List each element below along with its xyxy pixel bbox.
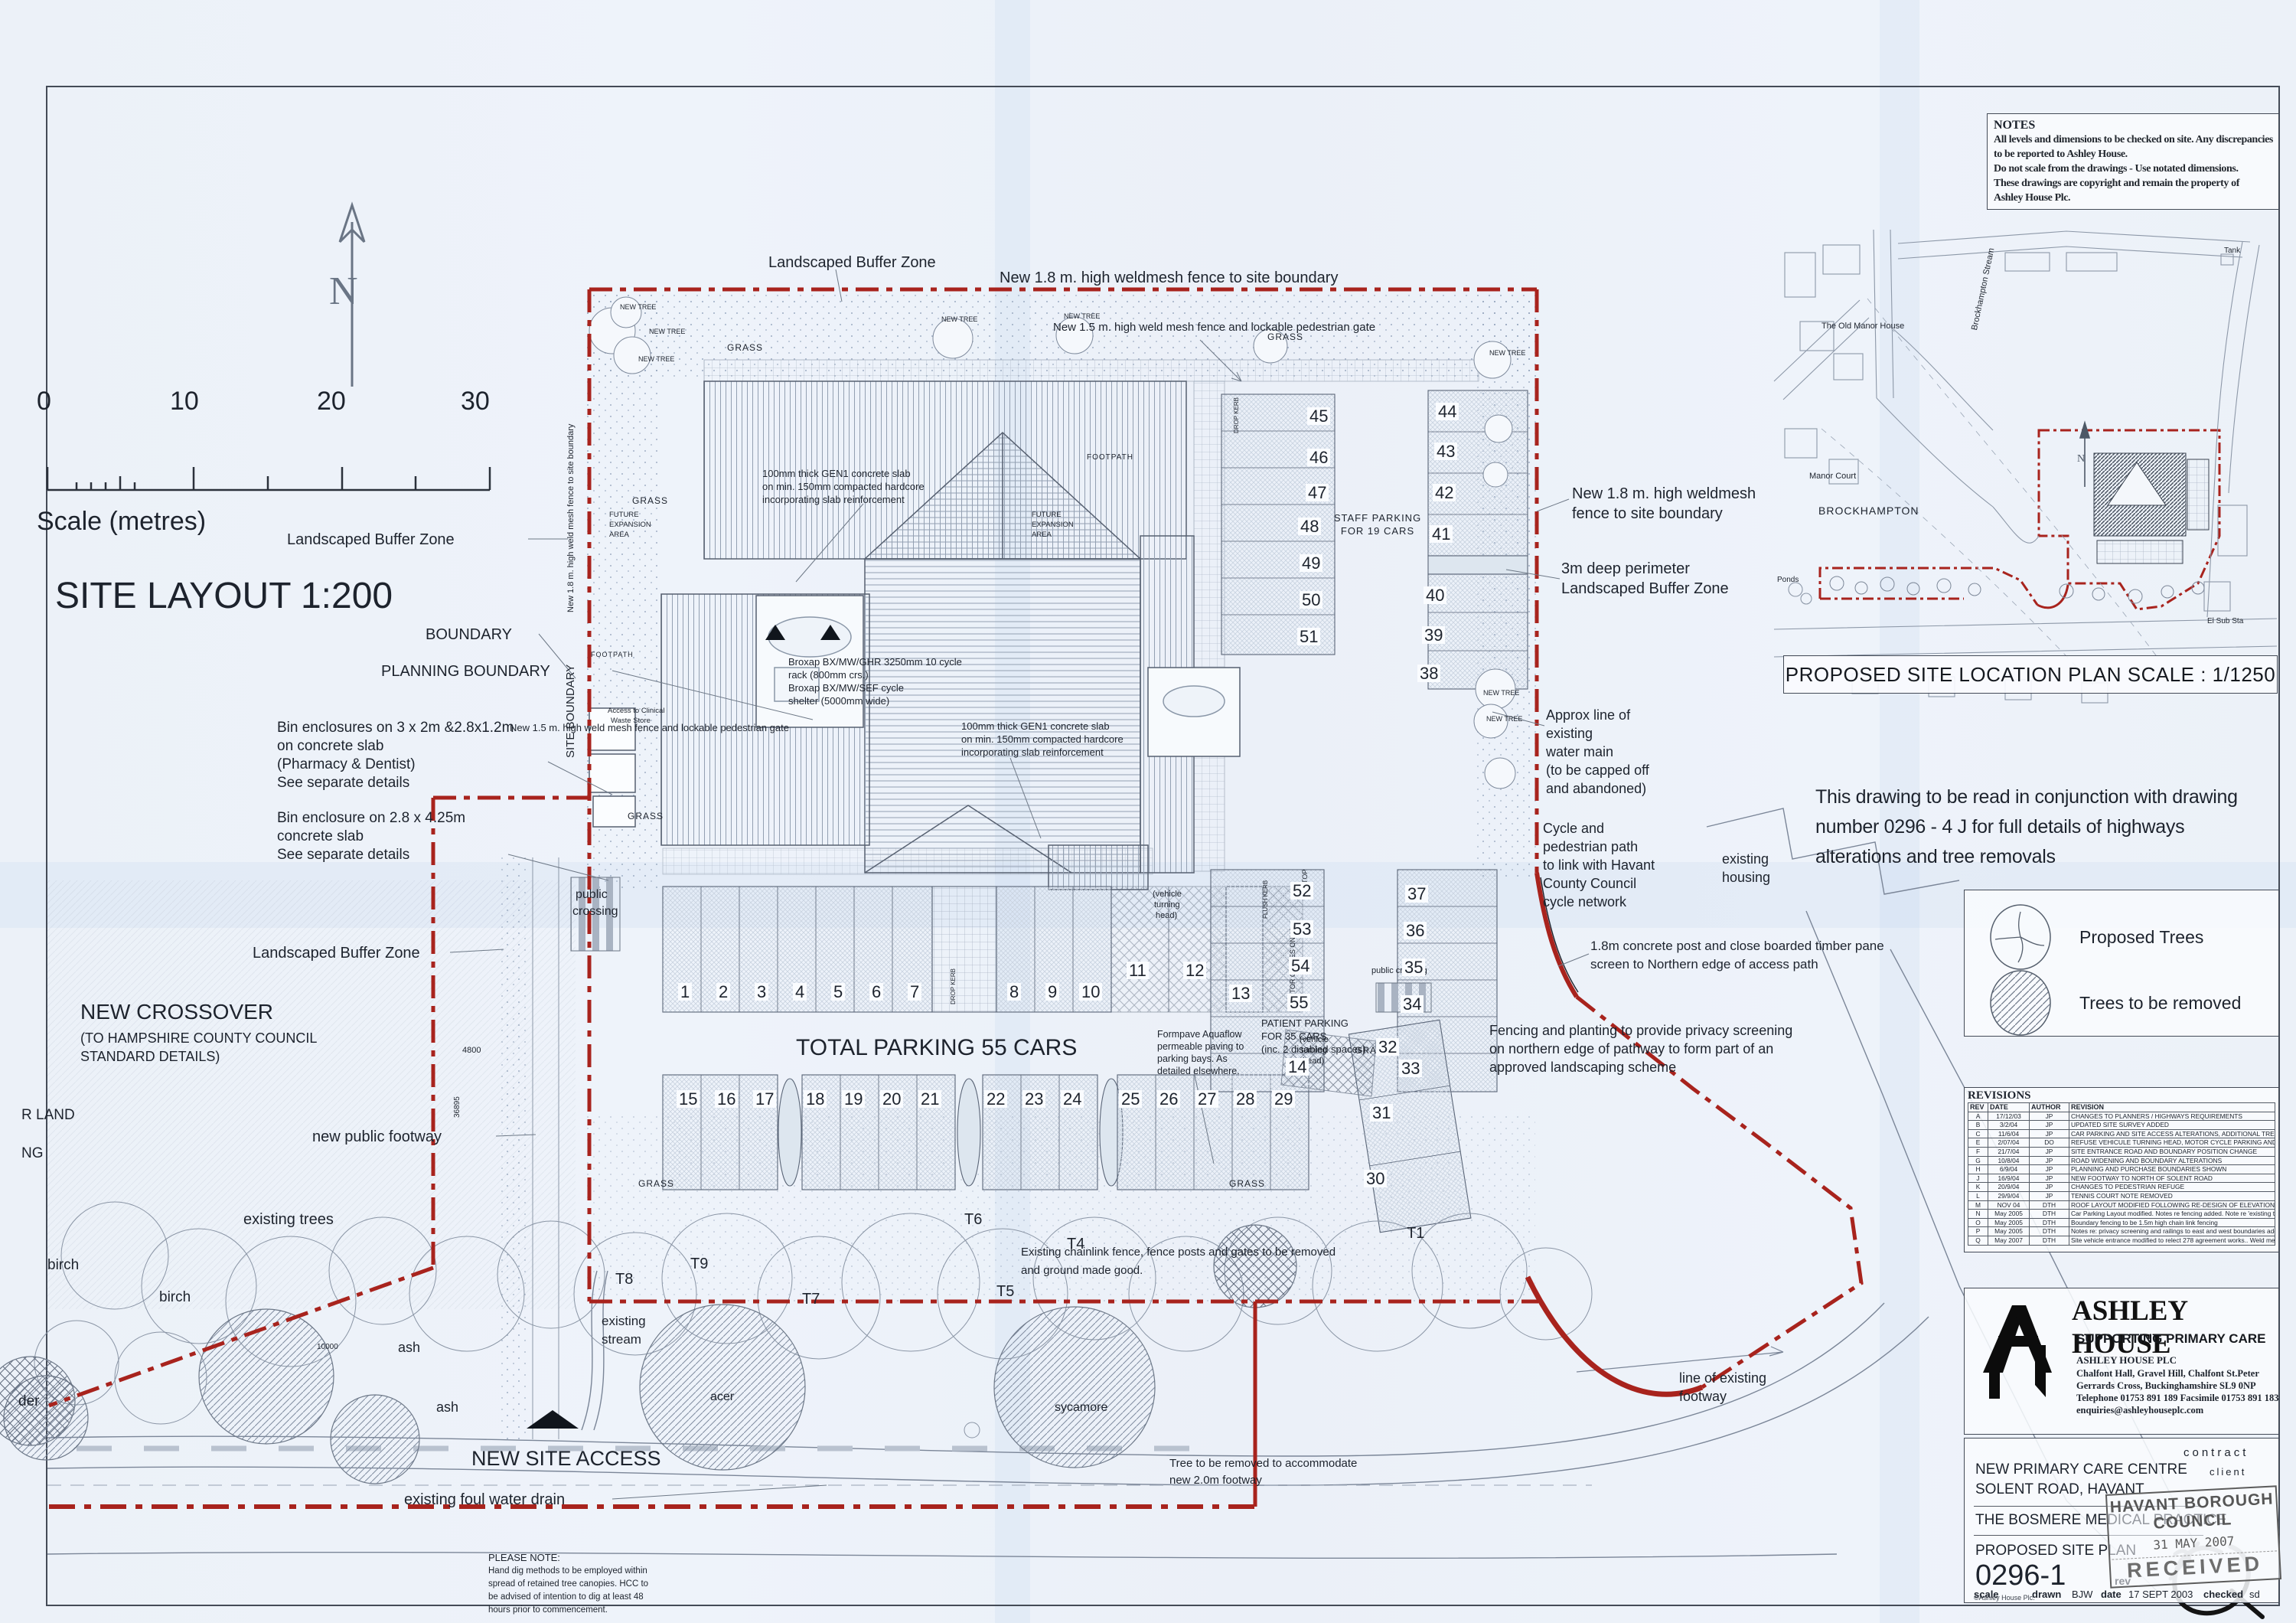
revision-author: JP	[2030, 1183, 2069, 1192]
plan-label: existing	[1722, 851, 1769, 867]
plan-label: der	[18, 1393, 39, 1409]
revision-date: 3/2/04	[1988, 1121, 2030, 1130]
plan-label: parking bays. As	[1157, 1053, 1228, 1064]
scalebar-tick-20: 20	[317, 387, 346, 416]
revision-text: Site vehicle entrance modified to relect…	[2069, 1236, 2275, 1245]
revision-text: CHANGES TO PLANNERS / HIGHWAYS REQUIREME…	[2069, 1112, 2275, 1121]
plan-label: GRASS	[1229, 1179, 1265, 1189]
revision-author: DTH	[2030, 1210, 2069, 1219]
plan-label: The Old Manor House	[1821, 322, 1904, 331]
parking-number: 29	[1272, 1090, 1295, 1108]
revision-rev: H	[1968, 1165, 1988, 1174]
plan-label: AREA	[609, 531, 629, 540]
parking-number: 44	[1436, 403, 1459, 420]
revisions-header-revision: REVISION	[2069, 1103, 2275, 1112]
parking-number: 55	[1287, 994, 1310, 1011]
parking-number: 18	[804, 1090, 827, 1108]
revision-text: ROOF LAYOUT MODIFIED FOLLOWING RE-DESIGN…	[2069, 1200, 2275, 1210]
plan-label: El Sub Sta	[2207, 617, 2243, 625]
plan-label: ash	[398, 1340, 420, 1355]
parking-number: 15	[677, 1090, 700, 1108]
plan-label: NEW TREE	[1483, 689, 1519, 697]
plan-label: BROCKHAMPTON	[1818, 505, 1919, 518]
company-email: enquiries@ashleyhouseplc.com	[2076, 1405, 2203, 1416]
revision-text: Car Parking Layout modified. Notes re fe…	[2069, 1210, 2275, 1219]
plan-label: 3m deep perimeter	[1561, 560, 1690, 577]
parking-number: 35	[1402, 958, 1425, 976]
copyright: ©Ashley House Plc.	[1974, 1594, 2035, 1602]
revisions-header-rev: REV	[1968, 1103, 1988, 1112]
parking-number: 1	[678, 983, 692, 1001]
revision-row: B 3/2/04 JP UPDATED SITE SURVEY ADDED	[1968, 1121, 2275, 1130]
revision-row: L 29/9/04 JP TENNIS COURT NOTE REMOVED	[1968, 1191, 2275, 1200]
plan-label: NEW TREE	[649, 328, 685, 335]
tree-legend: Proposed Trees Trees to be removed	[1964, 890, 2279, 1037]
notes-line: Ashley House Plc.	[1994, 191, 2272, 205]
parking-number: 42	[1433, 484, 1456, 501]
plan-label: Ponds	[1777, 576, 1799, 584]
revision-rev: J	[1968, 1174, 1988, 1183]
parking-number: 20	[880, 1090, 903, 1108]
plan-label: turning	[1154, 900, 1180, 909]
revision-text: UPDATED SITE SURVEY ADDED	[2069, 1121, 2275, 1130]
plan-label: (vehicle	[1300, 1035, 1329, 1044]
parking-number: 23	[1022, 1090, 1045, 1108]
plan-label: FUTURE	[609, 511, 639, 520]
parking-number: 13	[1229, 985, 1252, 1002]
revision-date: 10/8/04	[1988, 1156, 2030, 1165]
client-label: client	[2210, 1466, 2246, 1478]
tree-label: T5	[996, 1283, 1014, 1300]
plan-label: Existing chainlink fence, fence posts an…	[1021, 1246, 1336, 1259]
parking-number: 39	[1422, 626, 1445, 644]
parking-number: 27	[1195, 1090, 1218, 1108]
plan-label: incorporating slab reinforcement	[762, 495, 905, 506]
plan-label: NEW TREE	[638, 355, 674, 363]
revision-row: P May 2005 DTH Notes re: privacy screeni…	[1968, 1227, 2275, 1236]
revision-date: NOV 04	[1988, 1200, 2030, 1210]
plan-label: 10000	[317, 1343, 338, 1351]
parking-number: 46	[1307, 449, 1330, 466]
revision-author: JP	[2030, 1165, 2069, 1174]
plan-label: existing trees	[243, 1211, 334, 1228]
plan-label: SITE BOUNDARY	[565, 665, 578, 758]
plan-label: screen to Northern edge of access path	[1590, 957, 1818, 972]
plan-label: BOUNDARY	[426, 626, 512, 643]
council-received-stamp: HAVANT BOROUGH COUNCIL 31 MAY 2007 RECEI…	[2105, 1485, 2281, 1589]
revision-author: JP	[2030, 1129, 2069, 1138]
plan-label: new 2.0m footway	[1169, 1474, 1262, 1487]
revision-rev: P	[1968, 1227, 1988, 1236]
revision-date: 6/9/04	[1988, 1165, 2030, 1174]
plan-label: cycle network	[1543, 894, 1626, 909]
revision-rev: B	[1968, 1121, 1988, 1130]
plan-label: NEW SITE ACCESS	[471, 1447, 661, 1470]
revision-text: Notes re: privacy screening and railings…	[2069, 1227, 2275, 1236]
notes-lines: All levels and dimensions to be checked …	[1994, 132, 2272, 205]
revision-date: 21/7/04	[1988, 1147, 2030, 1156]
proposed-tree-icon	[1988, 904, 2053, 970]
revision-text: ROAD WIDENING AND BOUNDARY ALTERATIONS	[2069, 1156, 2275, 1165]
revision-date: May 2005	[1988, 1218, 2030, 1227]
plan-label: Broxap BX/MW/SEF cycle	[788, 683, 904, 694]
legend-removed-label: Trees to be removed	[2079, 993, 2241, 1014]
parking-number: 41	[1430, 525, 1453, 543]
plan-label: New 1.5 m. high weld mesh fence and lock…	[1053, 322, 1375, 335]
revision-date: 29/9/04	[1988, 1191, 2030, 1200]
plan-label: on min. 150mm compacted hardcore	[961, 734, 1124, 746]
plan-label: Tree to be removed to accommodate	[1169, 1458, 1357, 1471]
revision-text: CAR PARKING AND SITE ACCESS ALTERATIONS,…	[2069, 1129, 2275, 1138]
parking-number: 30	[1364, 1170, 1387, 1187]
revision-text: SITE ENTRANCE ROAD AND BOUNDARY POSITION…	[2069, 1147, 2275, 1156]
revision-row: A 17/12/03 JP CHANGES TO PLANNERS / HIGH…	[1968, 1112, 2275, 1121]
scalebar-tick-10: 10	[170, 387, 199, 416]
parking-number: 37	[1405, 885, 1428, 903]
plan-label: TOTAL PARKING 55 CARS	[796, 1035, 1077, 1061]
plan-label: (Pharmacy & Dentist)	[277, 756, 416, 772]
parking-number: 36	[1404, 922, 1427, 939]
plan-label: FOR 19 CARS	[1341, 526, 1414, 537]
revision-date: 20/9/04	[1988, 1183, 2030, 1192]
plan-label: Waste Store	[611, 717, 651, 726]
revision-rev: L	[1968, 1191, 1988, 1200]
plan-label: crossing	[572, 905, 618, 919]
drawing-number: 0296-1	[1975, 1559, 2066, 1592]
plan-label: NEW TREE	[1064, 312, 1100, 320]
plan-label: 100mm thick GEN1 concrete slab	[961, 721, 1110, 733]
removed-tree-icon	[1988, 970, 2053, 1036]
plan-label: acer	[710, 1390, 734, 1404]
plan-label: and ground made good.	[1021, 1265, 1143, 1278]
revision-author: JP	[2030, 1174, 2069, 1183]
revision-author: DO	[2030, 1138, 2069, 1148]
tree-label: T9	[690, 1256, 708, 1272]
revision-date: May 2007	[1988, 1236, 2030, 1245]
revision-author: DTH	[2030, 1200, 2069, 1210]
parking-number: 32	[1376, 1038, 1399, 1056]
parking-number: 53	[1290, 920, 1313, 938]
plan-label: hours prior to commencement.	[488, 1605, 608, 1615]
plan-label: public	[576, 888, 608, 902]
plan-label: ash	[436, 1399, 458, 1415]
parking-number: 21	[918, 1090, 941, 1108]
company-address-2: Gerrards Cross, Buckinghamshire SL9 0NP	[2076, 1380, 2256, 1392]
plan-label: shelter (5000mm wide)	[788, 696, 889, 707]
revision-row: Q May 2007 DTH Site vehicle entrance mod…	[1968, 1236, 2275, 1245]
plan-label: detailed elsewhere.	[1157, 1066, 1240, 1076]
conjunction-line: alterations and tree removals	[1815, 842, 2282, 872]
plan-label: existing	[1546, 726, 1593, 741]
plan-label: to link with Havant	[1543, 857, 1655, 873]
plan-label: N	[2077, 453, 2085, 465]
plan-label: pedestrian path	[1543, 839, 1638, 854]
revision-rev: G	[1968, 1156, 1988, 1165]
drawn-label: drawn	[2032, 1589, 2061, 1600]
checked-value: sd	[2249, 1589, 2260, 1600]
plan-label: Bin enclosures on 3 x 2m &2.8x1.2m	[277, 720, 514, 736]
revision-text: NEW FOOTWAY TO NORTH OF SOLENT ROAD	[2069, 1174, 2275, 1183]
plan-label: GRASS	[632, 496, 668, 506]
parking-number: 28	[1234, 1090, 1257, 1108]
plan-label: County Council	[1543, 876, 1636, 891]
contract-label: contract	[2183, 1446, 2249, 1459]
plan-label: (TO HAMPSHIRE COUNTY COUNCIL	[80, 1030, 317, 1046]
revision-rev: E	[1968, 1138, 1988, 1148]
plan-label: be advised of intention to dig at least …	[488, 1592, 644, 1602]
plan-label: New 1.8 m. high weldmesh	[1572, 485, 1756, 502]
legend-proposed-label: Proposed Trees	[2079, 927, 2203, 948]
revisions-table: REVISIONS REV DATE AUTHOR REVISION A 17/…	[1964, 1087, 2279, 1252]
plan-label: GRASS	[628, 811, 664, 821]
plan-label: fence to site boundary	[1572, 505, 1723, 522]
plan-label: existing	[602, 1314, 646, 1328]
plan-label: PATIENT PARKING	[1261, 1018, 1349, 1030]
revision-row: E 2/07/04 DO REFUSE VEHICULE TURNING HEA…	[1968, 1138, 2275, 1148]
parking-number: 45	[1307, 407, 1330, 425]
parking-number: 49	[1300, 554, 1322, 572]
revision-rev: Q	[1968, 1236, 1988, 1245]
revision-row: O May 2005 DTH Boundary fencing to be 1.…	[1968, 1218, 2275, 1227]
plan-label: GRASS	[727, 343, 763, 353]
plan-label: Access to Clinical	[608, 707, 664, 716]
revision-text: TENNIS COURT NOTE REMOVED	[2069, 1191, 2275, 1200]
revision-rev: C	[1968, 1129, 1988, 1138]
plan-label: EXPANSION	[1032, 521, 1074, 530]
plan-label: line of existing	[1679, 1370, 1766, 1386]
tree-label: T6	[964, 1211, 982, 1228]
parking-number: 8	[1007, 983, 1021, 1001]
parking-number: 47	[1306, 484, 1329, 501]
plan-label: Hand dig methods to be employed within	[488, 1566, 647, 1576]
parking-number: 9	[1045, 983, 1059, 1001]
plan-label: Manor Court	[1809, 472, 1856, 481]
notes-line: These drawings are copyright and remain …	[1994, 176, 2272, 191]
revision-row: F 21/7/04 JP SITE ENTRANCE ROAD AND BOUN…	[1968, 1147, 2275, 1156]
revision-date: 16/9/04	[1988, 1174, 2030, 1183]
revision-row: M NOV 04 DTH ROOF LAYOUT MODIFIED FOLLOW…	[1968, 1200, 2275, 1210]
plan-label: Formpave Aquaflow	[1157, 1029, 1241, 1040]
plan-label: 36895	[453, 1096, 461, 1118]
plan-label: Landscaped Buffer Zone	[768, 254, 936, 271]
company-address-1: Chalfont Hall, Gravel Hill, Chalfont St.…	[2076, 1368, 2259, 1380]
plan-label: Cycle and	[1543, 821, 1604, 836]
plan-label: rack (800mm crs.)	[788, 670, 869, 681]
plan-label: AREA	[1032, 531, 1052, 540]
revision-rev: K	[1968, 1183, 1988, 1192]
stamp-received: RECEIVED	[2112, 1550, 2278, 1583]
revision-row: J 16/9/04 JP NEW FOOTWAY TO NORTH OF SOL…	[1968, 1174, 2275, 1183]
plan-label: and abandoned)	[1546, 781, 1646, 796]
parking-number: 25	[1119, 1090, 1142, 1108]
plan-label: Tank	[2224, 247, 2240, 255]
plan-label: EXPANSION	[609, 521, 651, 530]
title-block: ASHLEY HOUSE SUPPORTING PRIMARY CARE ASH…	[1964, 1288, 2279, 1435]
plan-label: Broxap BX/MW/GHR 3250mm 10 cycle	[788, 657, 962, 668]
revisions-header-date: DATE	[1988, 1103, 2030, 1112]
ashley-house-logo	[1972, 1299, 2063, 1414]
plan-label: STAFF PARKING	[1334, 513, 1421, 524]
parking-number: 24	[1061, 1090, 1084, 1108]
plan-label: FLUSH KERB	[1263, 880, 1270, 919]
plan-label: on northern edge of pathway to form part…	[1489, 1041, 1773, 1056]
revision-text: CHANGES TO PEDESTRIAN REFUGE	[2069, 1183, 2275, 1192]
plan-label: NG	[21, 1145, 44, 1161]
parking-number: 26	[1157, 1090, 1180, 1108]
revision-rev: M	[1968, 1200, 1988, 1210]
plan-label: NEW TREE	[941, 315, 977, 323]
revision-author: DTH	[2030, 1227, 2069, 1236]
plan-label: NEW TREE	[1486, 715, 1522, 723]
parking-number: 19	[842, 1090, 865, 1108]
plan-label: DROP KERB	[1234, 397, 1241, 433]
plan-label: new public footway	[312, 1128, 442, 1145]
plan-label: housing	[1722, 870, 1770, 885]
scalebar-tick-30: 30	[461, 387, 490, 416]
plan-label: See separate details	[277, 847, 409, 863]
parking-number: 3	[755, 983, 768, 1001]
plan-label: 1.8m concrete post and close boarded tim…	[1590, 939, 1884, 953]
plan-label: head)	[1156, 911, 1177, 920]
plan-label: concrete slab	[277, 828, 364, 844]
parking-number: 6	[869, 983, 883, 1001]
plan-label: DROP KERB	[951, 968, 957, 1004]
parking-number: 16	[715, 1090, 738, 1108]
plan-label: on min. 150mm compacted hardcore	[762, 482, 925, 493]
parking-number: 11	[1127, 962, 1149, 979]
scalebar-tick-0: 0	[37, 387, 51, 416]
plan-label: (to be capped off	[1546, 763, 1649, 778]
plan-label: FOOTPATH	[591, 651, 634, 658]
company-plc: ASHLEY HOUSE PLC	[2076, 1354, 2177, 1367]
plan-label: on concrete slab	[277, 738, 383, 754]
plan-label: FUTURE	[1032, 511, 1062, 520]
plan-label: water main	[1546, 744, 1613, 759]
plan-label: PLEASE NOTE:	[488, 1553, 560, 1564]
revision-row: K 20/9/04 JP CHANGES TO PEDESTRIAN REFUG…	[1968, 1183, 2275, 1192]
parking-number: 38	[1417, 665, 1440, 682]
notes-line: Do not scale from the drawings - Use not…	[1994, 162, 2272, 176]
plan-label: New 1.8 m. high weldmesh fence to site b…	[1000, 269, 1338, 286]
plan-label: FOOTPATH	[1087, 453, 1133, 462]
parking-number: 34	[1401, 995, 1424, 1013]
parking-number: 14	[1286, 1058, 1309, 1076]
plan-label: permeable paving to	[1157, 1041, 1244, 1052]
parking-number: 5	[831, 983, 845, 1001]
plan-label: Landscaped Buffer Zone	[287, 531, 455, 548]
drawn-value: BJW	[2072, 1589, 2092, 1600]
parking-number: 12	[1183, 962, 1206, 979]
plan-label: incorporating slab reinforcement	[961, 747, 1104, 759]
plan-label: existing foul water drain	[404, 1491, 565, 1508]
revision-author: JP	[2030, 1191, 2069, 1200]
parking-number: 54	[1289, 957, 1312, 975]
notes-line: to be reported to Ashley House.	[1994, 147, 2272, 162]
parking-number: 51	[1297, 628, 1320, 645]
plan-label: Bin enclosure on 2.8 x 4.25m	[277, 810, 465, 826]
plan-label: NEW TREE	[620, 303, 656, 311]
revision-author: JP	[2030, 1147, 2069, 1156]
checked-label: checked	[2203, 1589, 2243, 1600]
plan-label: R LAND	[21, 1107, 75, 1123]
revision-text: Boundary fencing to be 1.5m high chain l…	[2069, 1218, 2275, 1227]
plan-label: Landscaped Buffer Zone	[1561, 580, 1729, 597]
parking-number: 2	[716, 983, 730, 1001]
plan-label: spread of retained tree canopies. HCC to	[488, 1579, 648, 1589]
revision-date: 17/12/03	[1988, 1112, 2030, 1121]
notes-title: NOTES	[1994, 119, 2272, 132]
plan-label: Fencing and planting to provide privacy …	[1489, 1023, 1792, 1038]
plan-label: (vehicle	[1153, 890, 1182, 899]
revisions-title: REVISIONS	[1968, 1089, 2275, 1102]
revision-rev: N	[1968, 1210, 1988, 1219]
revision-author: DTH	[2030, 1218, 2069, 1227]
revision-row: H 6/9/04 JP PLANNING AND PURCHASE BOUNDA…	[1968, 1165, 2275, 1174]
plan-label: GRASS	[1267, 332, 1303, 342]
project-title-line1: NEW PRIMARY CARE CENTRE	[1975, 1461, 2187, 1478]
company-tagline: SUPPORTING PRIMARY CARE	[2076, 1331, 2265, 1347]
revision-author: JP	[2030, 1112, 2069, 1121]
parking-number: 17	[753, 1090, 776, 1108]
date-value: 17 SEPT 2003	[2128, 1589, 2193, 1600]
parking-number: 33	[1399, 1060, 1422, 1077]
parking-number: 22	[984, 1090, 1007, 1108]
revision-row: N May 2005 DTH Car Parking Layout modifi…	[1968, 1210, 2275, 1219]
revision-author: DTH	[2030, 1236, 2069, 1245]
company-name: ASHLEY HOUSE	[2072, 1295, 2278, 1360]
plan-label: NEW TREE	[1489, 349, 1525, 357]
revision-rev: A	[1968, 1112, 1988, 1121]
revision-date: May 2005	[1988, 1227, 2030, 1236]
plan-label: New 1.8 m. high weld mesh fence to site …	[566, 424, 576, 612]
plan-label: 4800	[462, 1046, 481, 1055]
plan-label: See separate details	[277, 775, 409, 791]
tree-label: T7	[802, 1291, 820, 1308]
revisions-header-author: AUTHOR	[2030, 1103, 2069, 1112]
notes-line: All levels and dimensions to be checked …	[1994, 132, 2272, 147]
plan-label: birch	[47, 1257, 79, 1273]
parking-number: 52	[1290, 882, 1313, 900]
parking-number: 43	[1434, 442, 1457, 460]
revision-rev: F	[1968, 1147, 1988, 1156]
conjunction-line: number 0296 - 4 J for full details of hi…	[1815, 812, 2282, 842]
plan-label: 100mm thick GEN1 concrete slab	[762, 469, 911, 480]
revision-author: JP	[2030, 1121, 2069, 1130]
revision-text: REFUSE VEHICULE TURNING HEAD, MOTOR CYCL…	[2069, 1138, 2275, 1148]
parking-number: 10	[1079, 983, 1102, 1001]
revision-author: JP	[2030, 1156, 2069, 1165]
revision-date: 2/07/04	[1988, 1138, 2030, 1148]
plan-label: Landscaped Buffer Zone	[253, 945, 420, 962]
plan-label: PLANNING BOUNDARY	[381, 663, 550, 680]
plan-label: footway	[1679, 1389, 1727, 1404]
parking-number: 7	[908, 983, 921, 1001]
plan-label: NEW CROSSOVER	[80, 1000, 273, 1024]
plan-label: GRASS	[638, 1179, 674, 1189]
plan-label: Approx line of	[1546, 707, 1630, 723]
parking-number: 40	[1424, 586, 1446, 604]
parking-number: 4	[793, 983, 807, 1001]
tree-label: T1	[1407, 1225, 1424, 1242]
revision-row: G 10/8/04 JP ROAD WIDENING AND BOUNDARY …	[1968, 1156, 2275, 1165]
plan-label: birch	[159, 1289, 191, 1305]
parking-number: 50	[1300, 591, 1322, 609]
location-plan-title: PROPOSED SITE LOCATION PLAN SCALE : 1/12…	[1783, 655, 2278, 694]
conjunction-note: This drawing to be read in conjunction w…	[1815, 782, 2282, 872]
plan-label: turning	[1301, 1046, 1327, 1055]
plan-label: N	[329, 269, 358, 314]
site-layout-title: SITE LAYOUT 1:200	[55, 576, 393, 617]
